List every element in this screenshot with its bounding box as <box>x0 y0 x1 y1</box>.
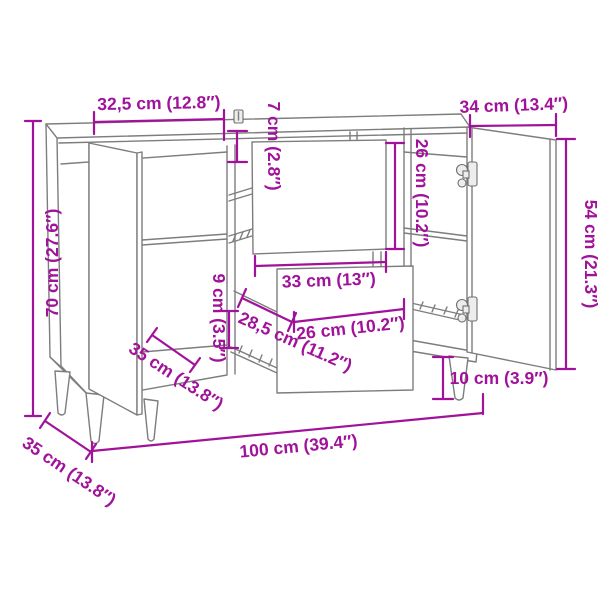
dim-label-top-section-width: 32,5 cm (12.8″) <box>97 92 221 114</box>
dim-label-door-height: 54 cm (21.3″) <box>581 200 600 309</box>
left-door-open <box>89 143 142 415</box>
dim-label-overall-height: 70 cm (27.6″) <box>42 209 62 318</box>
leg-left-back <box>55 371 70 415</box>
dim-drawer-front-height: 26 cm (10.2″) <box>386 139 432 249</box>
leg-center-front <box>144 399 158 441</box>
dim-door-height: 54 cm (21.3″) <box>557 139 600 369</box>
dim-label-overall-depth: 35 cm (13.8″) <box>19 432 120 509</box>
fitting-bracket-icon <box>234 110 243 123</box>
dim-label-drawer-front-height: 26 cm (10.2″) <box>412 139 432 248</box>
dim-drawer-width-outer: 33 cm (13″) <box>255 252 386 292</box>
right-door-open <box>457 127 557 370</box>
sideboard-diagram: 32,5 cm (12.8″) 34 cm (13.4″) 7 cm (2.8″… <box>0 0 600 600</box>
dim-overall-depth: 35 cm (13.8″) <box>19 413 120 510</box>
dim-drawer-gap-height: 9 cm (3.5″) <box>209 273 238 362</box>
leg-left-front <box>86 393 104 444</box>
dim-label-drawer-gap-height: 9 cm (3.5″) <box>209 273 229 362</box>
dim-label-drawer-width-outer: 33 cm (13″) <box>281 268 376 291</box>
dim-label-leg-height: 10 cm (3.9″) <box>450 368 549 388</box>
diagram-canvas: 32,5 cm (12.8″) 34 cm (13.4″) 7 cm (2.8″… <box>0 0 600 600</box>
dim-label-right-door-width: 34 cm (13.4″) <box>459 93 568 117</box>
dim-label-top-clearance: 7 cm (2.8″) <box>264 101 284 190</box>
